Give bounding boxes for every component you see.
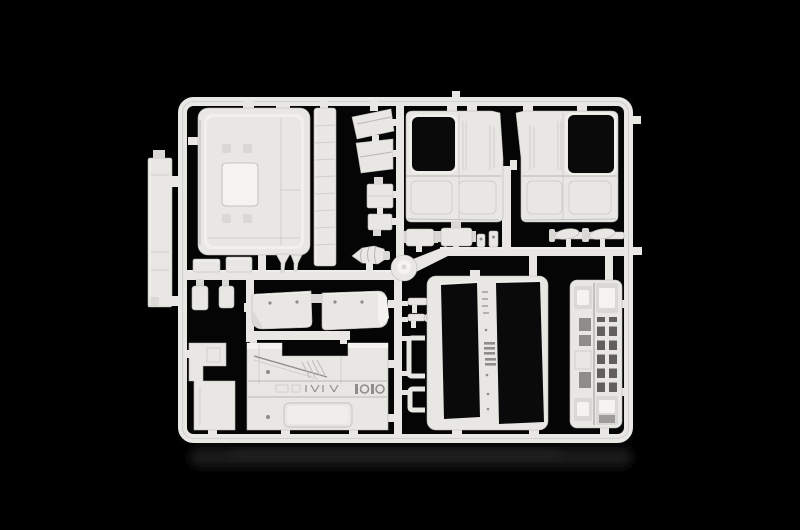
photo-sheen xyxy=(178,97,633,443)
part-side-stack xyxy=(148,150,182,307)
sprue-photo xyxy=(0,0,800,530)
table-reflection xyxy=(190,447,632,467)
photo-stage xyxy=(0,0,800,530)
